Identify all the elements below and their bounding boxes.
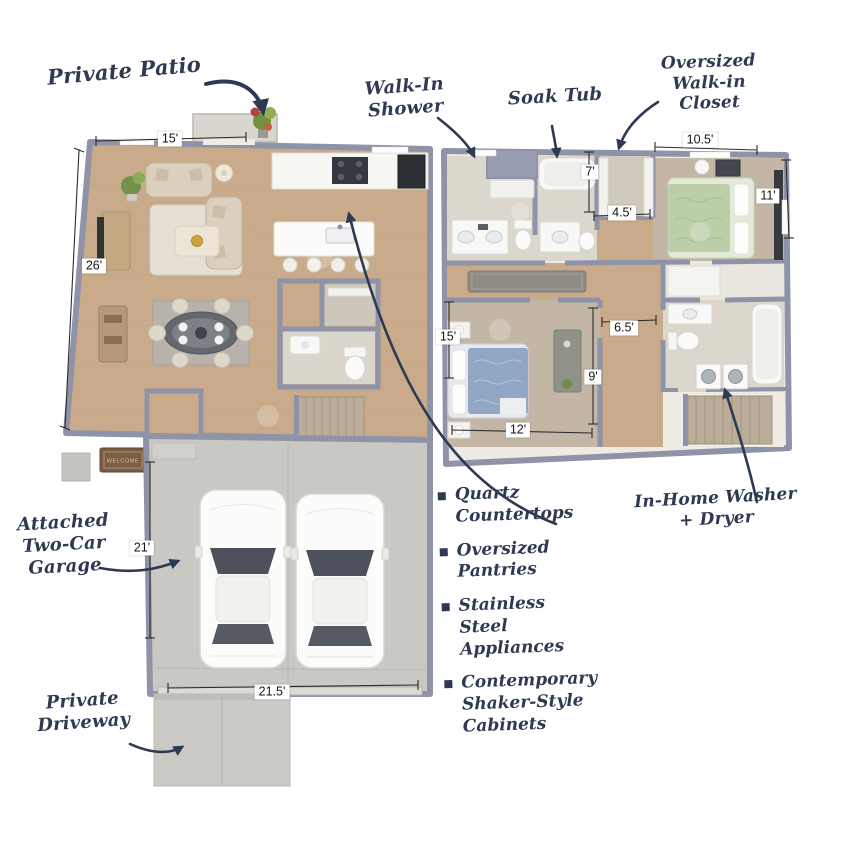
patio-arrow [206,81,263,112]
floor-lamp-icon [216,165,233,182]
car-right-icon [291,494,389,668]
dim-living-width-top: 15' [158,132,182,147]
bath2-toilet-icon [579,232,595,250]
car-left-icon [195,490,291,668]
fridge-icon [398,155,425,188]
dim-hall-width: 6.5' [610,321,638,336]
bullet-square-icon [444,680,452,688]
dim-bedroom2-depth: 15' [436,330,460,345]
driveway [154,694,290,786]
coffee-table [175,226,219,256]
nightstand [716,160,740,176]
bed-blue-icon [448,344,528,418]
dresser [554,330,581,392]
window [782,200,788,234]
feature-text: Oversized Pantries [456,536,589,584]
garage [146,436,430,695]
floor-plan-stage: WELCOME [0,0,844,844]
lamp-icon [695,160,709,174]
window [690,152,730,158]
living-kitchen-unit: WELCOME [62,139,430,481]
powder-toilet-icon [345,356,365,380]
dim-bedroom1-width: 10.5' [683,133,718,148]
tv-icon [97,217,104,263]
bullet-square-icon [440,548,448,556]
bath1-toilet-icon [514,220,532,250]
dim-hall-depth: 9' [584,370,601,385]
bullet-square-icon [438,492,446,500]
bath3-toilet-icon [668,332,699,350]
feature-text: Stainless Steel Appliances [458,591,592,661]
dim-wic-width: 4.5' [608,206,636,221]
dim-garage-width: 21.5' [255,685,290,700]
dim-bedroom1-depth: 11' [756,189,779,204]
entry-area: WELCOME [62,448,146,481]
label-private-driveway: Private Driveway [23,686,144,738]
sofa-top [146,163,212,197]
label-attached-garage: Attached Two-Car Garage [6,509,121,581]
bath3-tub-icon [752,304,782,384]
builtin-cabinet [668,266,720,296]
stoop [62,453,90,481]
stairs-main [294,395,364,441]
label-oversized-closet: Oversized Walk-in Closet [647,50,771,116]
patio-door [203,139,255,145]
bath1-vanity [452,220,508,254]
dim-wic-depth: 7' [581,165,598,180]
runner-rug [468,271,586,292]
garage-step [152,443,196,459]
feature-text: Contemporary Shaker-Style Cabinets [461,668,595,738]
feature-item: Oversized Pantries [439,534,630,584]
label-walk-in-shower: Walk-In Shower [345,72,466,124]
feature-item: Stainless Steel Appliances [441,590,633,662]
feature-item: Contemporary Shaker-Style Cabinets [444,667,636,739]
window [372,147,408,153]
dim-garage-depth: 21' [130,541,154,556]
kitchen-counter [272,153,428,189]
feature-item: Quartz Countertops [437,479,628,529]
dim-living-depth: 26' [82,259,106,274]
stove-icon [332,157,368,184]
doormat-text: WELCOME [107,459,140,465]
dim-bedroom2-width: 12' [506,423,530,438]
sink-icon [326,228,354,243]
entry-closet [147,391,201,437]
feature-text: Quartz Countertops [454,480,587,528]
feature-list: Quartz Countertops Oversized Pantries St… [437,479,636,751]
bullet-square-icon [442,603,450,611]
side-desk [99,306,127,362]
